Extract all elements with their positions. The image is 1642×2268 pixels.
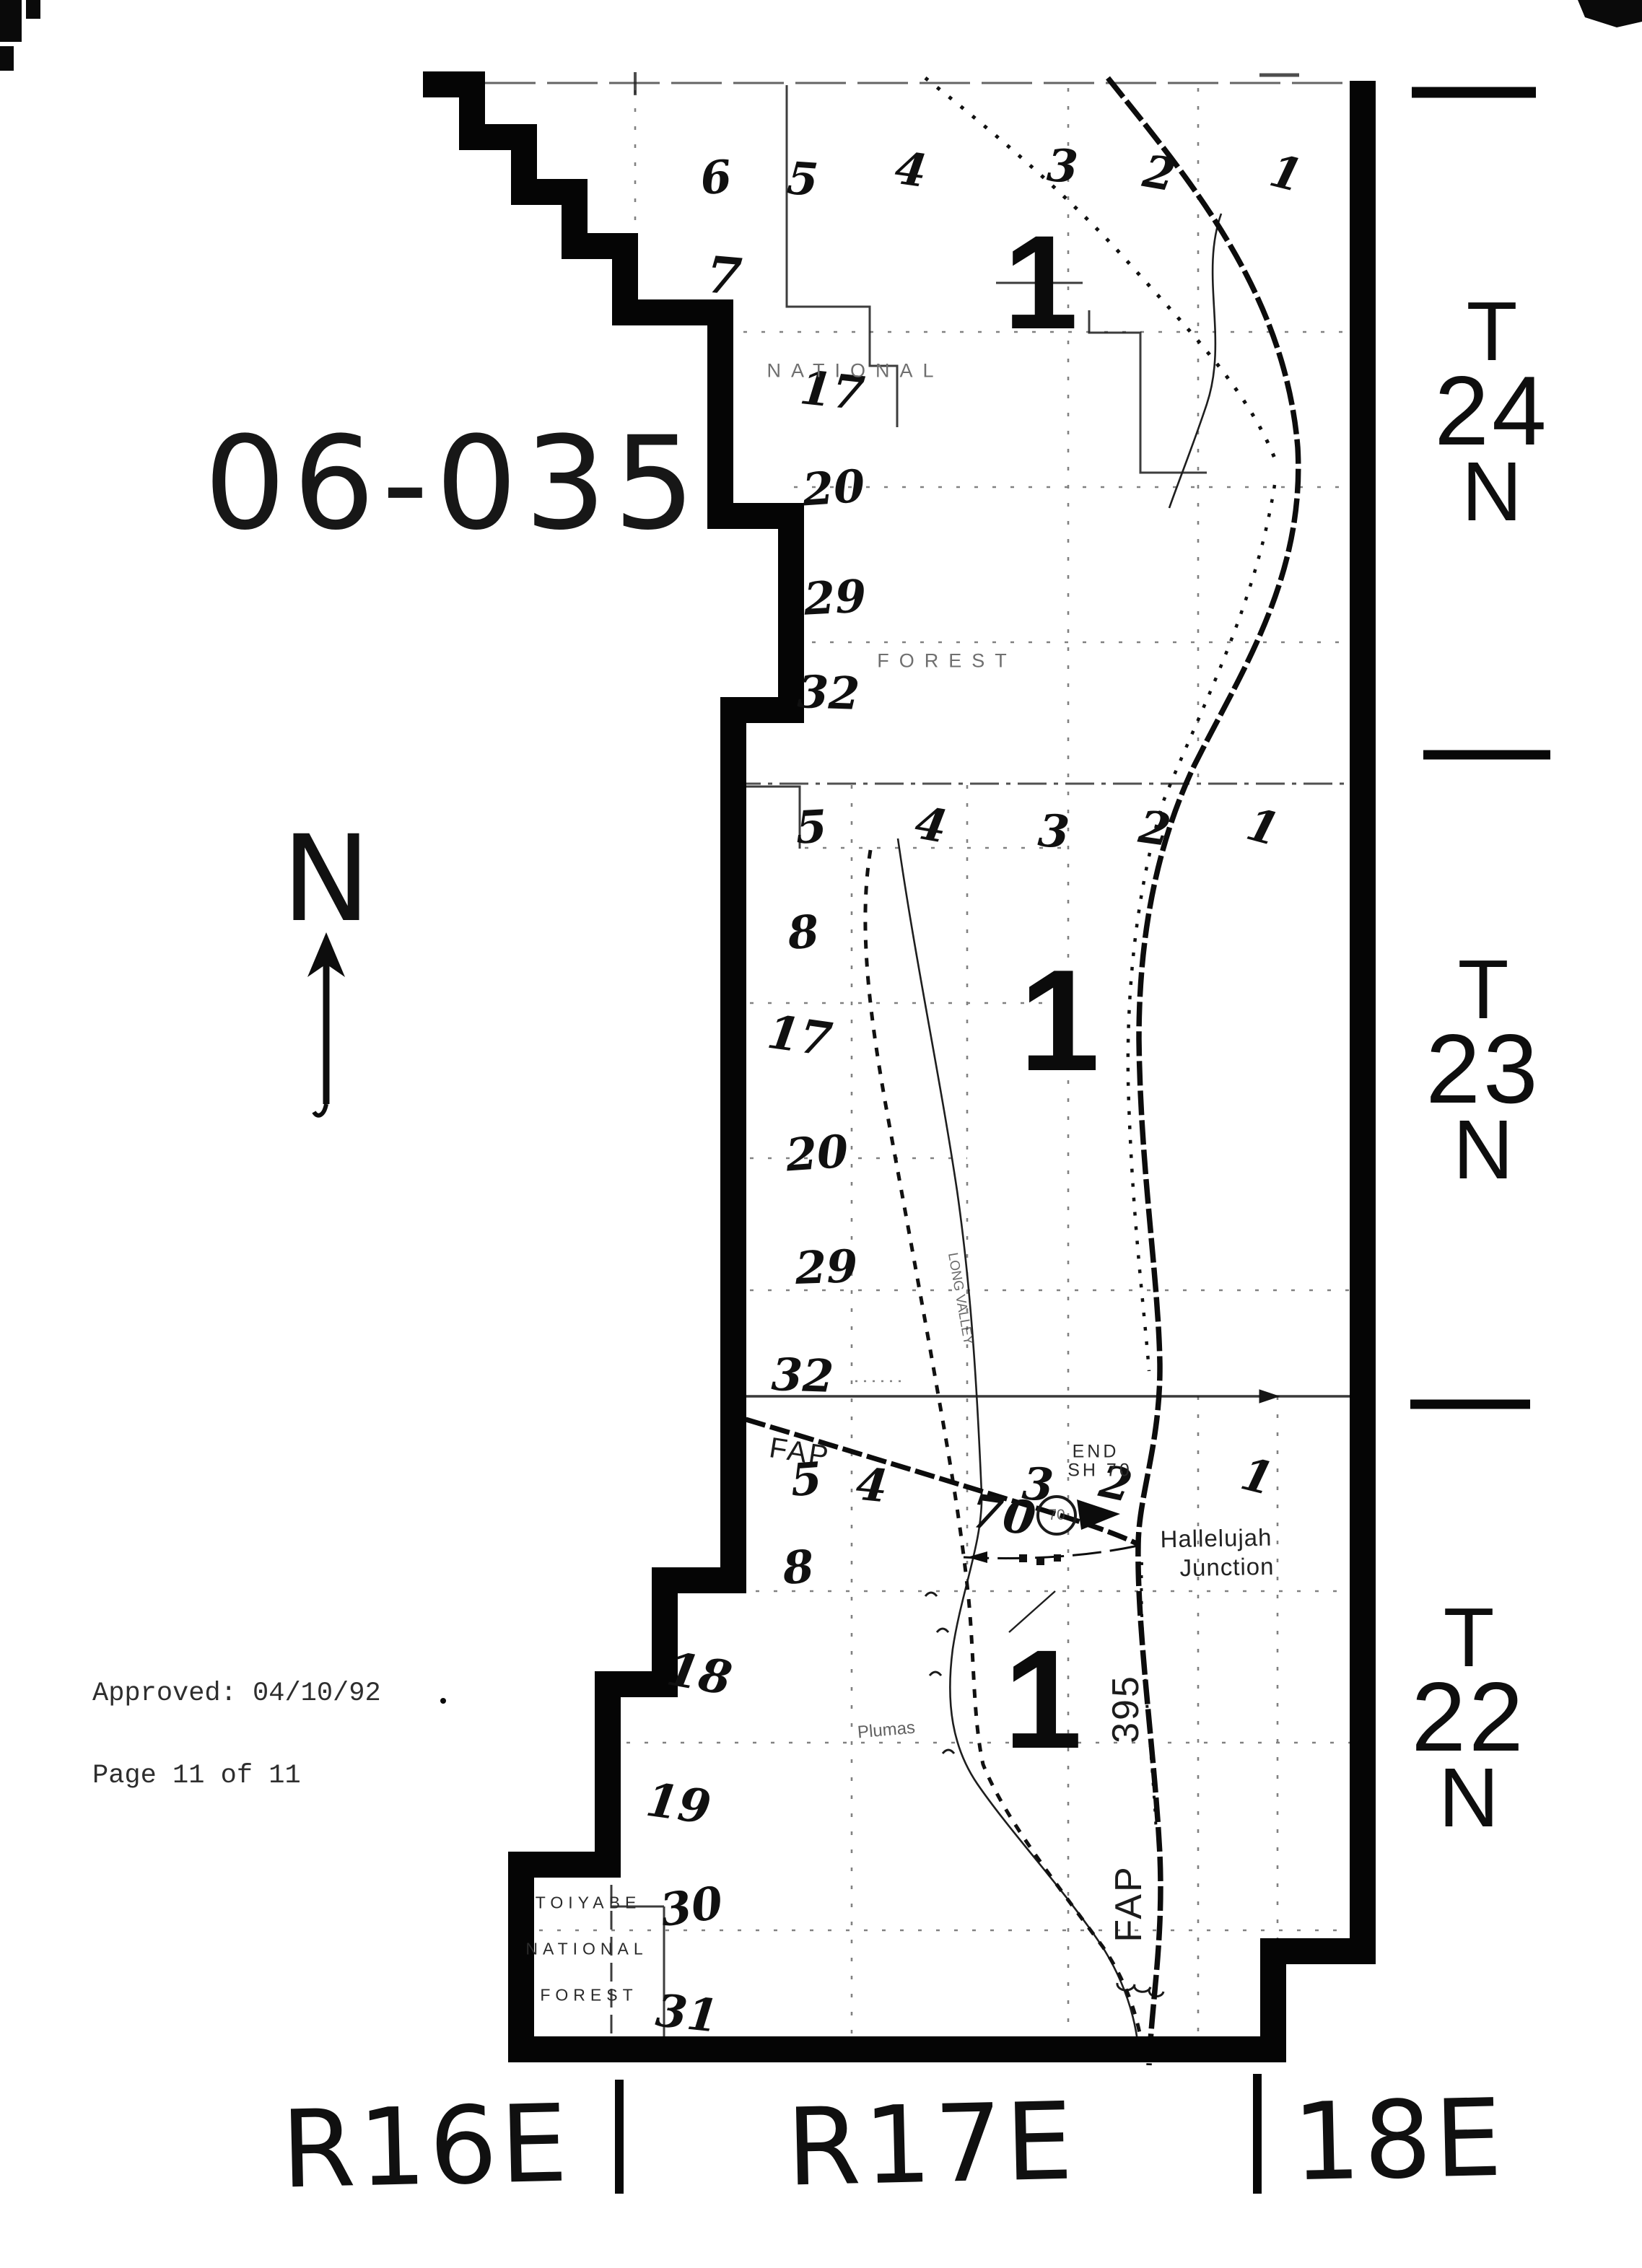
toiyabe-line1: TOIYABE: [536, 1893, 642, 1913]
junction-buildings: [1019, 1554, 1061, 1565]
page-number-line: Page 11 of 11: [92, 1761, 301, 1791]
section-32-t24n: 32: [797, 665, 861, 720]
section-4-t22n: 4: [854, 1457, 891, 1512]
end-sh70-line2: SH 70: [1067, 1461, 1132, 1481]
section-20-t23n: 20: [784, 1125, 850, 1182]
section-5-t24n: 5: [785, 152, 820, 206]
range-label-r16e: R16E: [280, 2081, 572, 2212]
section-19-t22n: 19: [643, 1773, 715, 1836]
section-17-t23n: 17: [764, 1005, 836, 1068]
end-sh70-line1: END: [1073, 1442, 1119, 1463]
section-29-t23n: 29: [795, 1240, 859, 1295]
forest-word-national: NATIONAL: [767, 360, 943, 382]
township-t24n-suffix: N: [1416, 455, 1568, 528]
township-label-t23n: T 23 N: [1407, 953, 1559, 1186]
township-t23n-suffix: N: [1407, 1113, 1559, 1186]
township-t24n-number: 24: [1416, 368, 1568, 455]
section-6-t24n: 6: [698, 149, 735, 205]
forest-word-forest: FOREST: [877, 650, 1017, 673]
toiyabe-line3: FOREST: [540, 1986, 637, 2005]
place-hallelujah: Hallelujah: [1160, 1524, 1272, 1554]
section-3-t24n: 3: [1046, 139, 1080, 193]
township-t22n-suffix: N: [1393, 1761, 1545, 1834]
section-3-t23n: 3: [1036, 804, 1071, 859]
section-8-t22n: 8: [780, 1540, 816, 1595]
big-section-1-t22n: 1: [1004, 1619, 1082, 1780]
section-30-t22n: 30: [657, 1876, 726, 1937]
section-20-t24n: 20: [800, 460, 866, 517]
section-5-t22n: 5: [789, 1452, 824, 1507]
section-31-t22n: 31: [653, 1984, 720, 2043]
section-7-t24n: 7: [704, 245, 744, 307]
scanned-map-page: 06-035 N T 24 N T 23 N T 22 N R16E R17E …: [0, 0, 1642, 2268]
top-section-line: [423, 72, 1358, 95]
fap-395-route: 395: [1104, 1674, 1148, 1743]
local-road-arrow: [967, 1551, 987, 1563]
route-shield-70: 70: [1048, 1507, 1065, 1524]
section-32-t23n: 32: [771, 1348, 835, 1403]
section-18-t22n: 18: [663, 1642, 736, 1706]
big-section-1-t24n: 1: [1004, 206, 1078, 359]
fap-395-prefix: FAP: [1107, 1865, 1150, 1942]
big-section-1-t23n: 1: [1019, 938, 1099, 1104]
township-label-t22n: T 22 N: [1393, 1601, 1545, 1834]
place-junction: Junction: [1179, 1553, 1275, 1582]
junction-local-road: [964, 1546, 1138, 1558]
approved-date-line: Approved: 04/10/92: [92, 1678, 381, 1709]
map-id: 06-035: [204, 409, 702, 559]
north-label: N: [281, 810, 370, 948]
us-395-road: [1108, 78, 1298, 2065]
township-t22n-number: 22: [1393, 1674, 1545, 1761]
section-8-t23n: 8: [785, 905, 821, 960]
township-label-t24n: T 24 N: [1416, 294, 1568, 528]
range-label-18e: 18E: [1291, 2076, 1506, 2205]
toiyabe-line2: NATIONAL: [525, 1940, 647, 1959]
section-29-t24n: 29: [803, 569, 868, 625]
route-70-handwritten: 70: [968, 1484, 1039, 1547]
section-5-t23n: 5: [795, 800, 829, 854]
township-t23n-number: 23: [1407, 1026, 1559, 1113]
north-arrow-icon: [307, 932, 345, 1116]
range-label-r17e: R17E: [785, 2079, 1077, 2210]
